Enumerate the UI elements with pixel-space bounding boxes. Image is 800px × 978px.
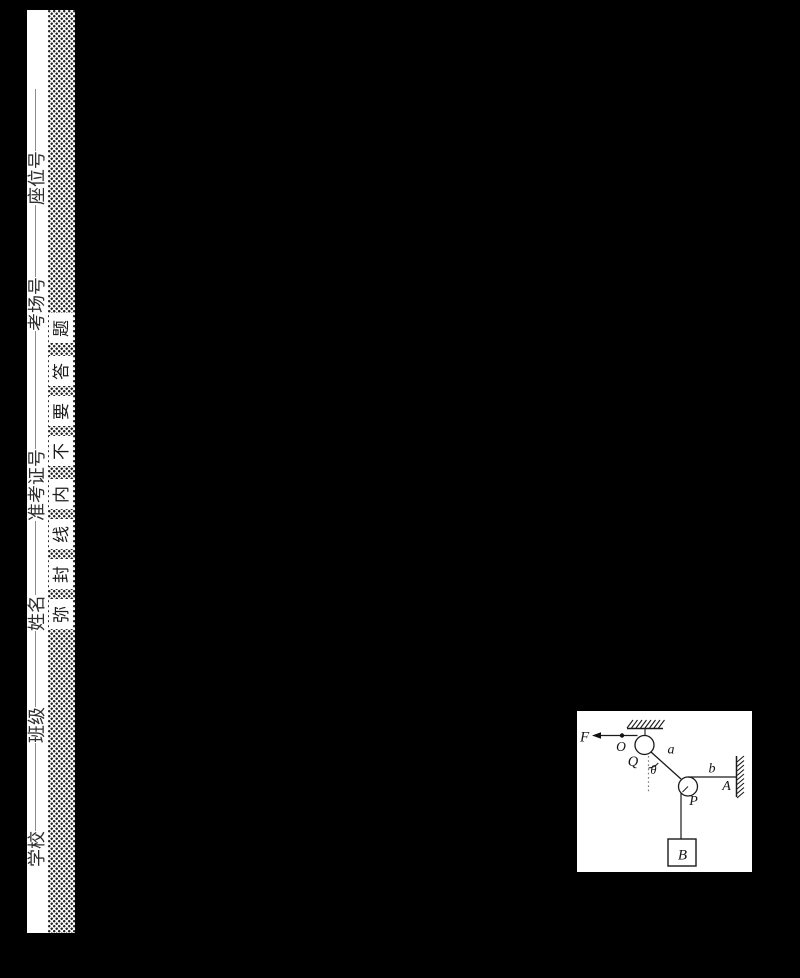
field-label-exam-room: 考场号	[27, 277, 48, 331]
field-label-class: 班级	[27, 707, 48, 743]
seal-line-band: 题 答 要 不 内 线 封 弥	[48, 10, 75, 933]
seal-char-box: 题	[49, 313, 73, 343]
seal-char: 要	[53, 403, 70, 420]
seal-char: 线	[53, 526, 70, 543]
pulley-q-circle	[635, 736, 654, 755]
field-blank-exam-room	[35, 205, 36, 277]
point-o-dot	[620, 733, 624, 737]
seal-char-box: 弥	[49, 599, 73, 629]
seal-char-box: 要	[49, 396, 73, 426]
field-blank-class	[35, 631, 36, 707]
seal-char: 不	[53, 443, 70, 460]
field-blank-admission-number	[35, 331, 36, 449]
field-blank-school	[35, 743, 36, 831]
label-block-b: B	[678, 848, 687, 864]
field-blank-name	[35, 521, 36, 595]
label-pulley-p: P	[688, 794, 698, 809]
field-label-admission-number: 准考证号	[27, 449, 48, 521]
field-blank-seat-number	[35, 89, 36, 151]
label-pulley-q: Q	[628, 754, 639, 770]
seal-char-box: 封	[49, 559, 73, 589]
label-rope-a: a	[668, 743, 675, 758]
label-force-f: F	[579, 730, 590, 746]
seal-char-box: 线	[49, 519, 73, 549]
seal-char-box: 答	[49, 356, 73, 386]
scanned-exam-page: { "seal": { "fields": [ {"label": "学校"},…	[0, 0, 800, 978]
field-label-name: 姓名	[27, 595, 48, 631]
label-wall-a: A	[721, 779, 731, 794]
seal-char: 答	[53, 363, 70, 380]
seal-char: 题	[53, 320, 70, 337]
label-rope-b: b	[709, 762, 716, 777]
force-arrowhead-icon	[592, 732, 601, 739]
seal-char-box: 内	[49, 479, 73, 509]
pulley-system-figure: F O Q θ a b A P B	[577, 711, 752, 872]
label-angle-theta: θ	[650, 763, 656, 777]
physics-diagram: F O Q θ a b A P B	[577, 711, 752, 872]
seal-char: 弥	[53, 606, 70, 623]
field-label-school: 学校	[27, 831, 48, 867]
label-point-o: O	[616, 739, 626, 754]
wall-hatch	[737, 756, 744, 798]
student-info-strip: 学校 班级 姓名 准考证号 考场号 座位号	[27, 10, 48, 933]
student-info-rotated-line: 学校 班级 姓名 准考证号 考场号 座位号	[27, 10, 48, 933]
field-label-seat-number: 座位号	[27, 151, 48, 205]
ceiling-hatch	[627, 720, 665, 728]
seal-char-box: 不	[49, 436, 73, 466]
seal-char: 内	[53, 486, 70, 503]
seal-char: 封	[53, 566, 70, 583]
